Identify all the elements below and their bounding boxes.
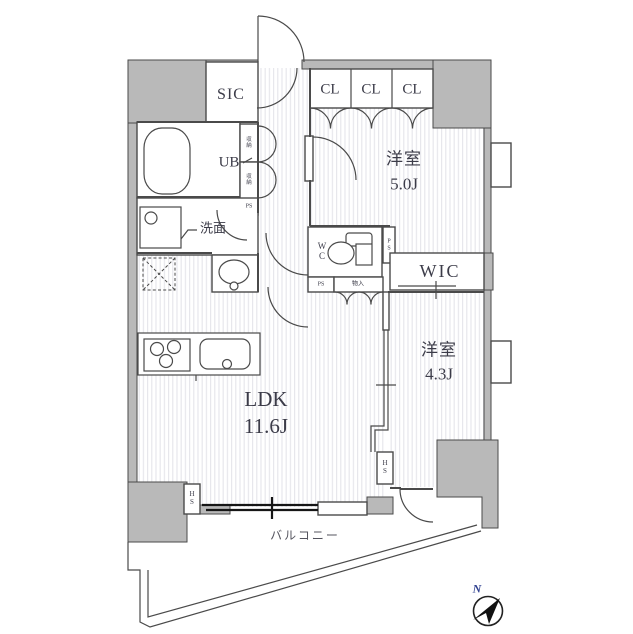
label-ub: UB [219,155,240,172]
label-bedroom2-size: 4.3J [425,364,453,383]
label-cupboard: 物入 [352,282,364,289]
washing-machine-pan [140,207,181,248]
label-ldk-name: LDK [244,388,287,412]
window-segment-ldk [318,502,367,515]
label-sic: SIC [217,86,245,104]
label-bedroom1-size: 5.0J [390,174,418,193]
wall-top-right [433,60,491,128]
wall-bottom-left [128,482,187,542]
label-hs-right: H S [382,460,387,476]
wall-top-band-2 [302,60,433,69]
wall-top-left [128,60,206,123]
label-cl-2: CL [361,82,380,99]
label-ps-hall: PS [246,204,253,211]
label-bedroom1-name: 洋室 [386,149,422,168]
label-storage-top: 収 納 [246,137,252,149]
label-cl-1: CL [320,82,339,99]
floorplan: SIC CL CL CL 洋室 5.0J 洋室 4.3J LDK 11.6J U… [0,0,633,634]
kitchen-counter [138,333,260,381]
window-bump-bedroom1 [491,143,511,187]
label-balcony: バルコニー [270,529,340,542]
bedroom2-balcony-door [400,489,433,522]
label-washroom: 洗面 [200,222,226,237]
entrance-door [258,16,304,62]
label-cl-3: CL [402,82,421,99]
label-ldk-size: 11.6J [244,415,288,439]
bedroom2-floor-lower [390,440,437,487]
wall-bottom-right [437,440,498,528]
window-bump-bedroom2 [491,341,511,383]
bedroom1-door-leaf [305,136,313,181]
label-wic: WIC [420,261,461,281]
compass-icon [473,597,503,626]
label-storage-bottom: 収 納 [246,174,252,186]
label-hs-left: H S [189,491,194,507]
label-wc: W C [318,241,327,261]
wall-mid-bottom [367,497,393,514]
wall-wic-right [484,253,493,290]
label-bedroom2-name: 洋室 [421,340,457,359]
bathtub [144,128,190,194]
wall-left [128,123,137,482]
label-ps-wc: P S [387,238,390,251]
label-north: N [473,582,482,595]
label-ps-ldk: PS [318,282,325,289]
wall-seg-ldk-bedroom2 [383,292,389,330]
